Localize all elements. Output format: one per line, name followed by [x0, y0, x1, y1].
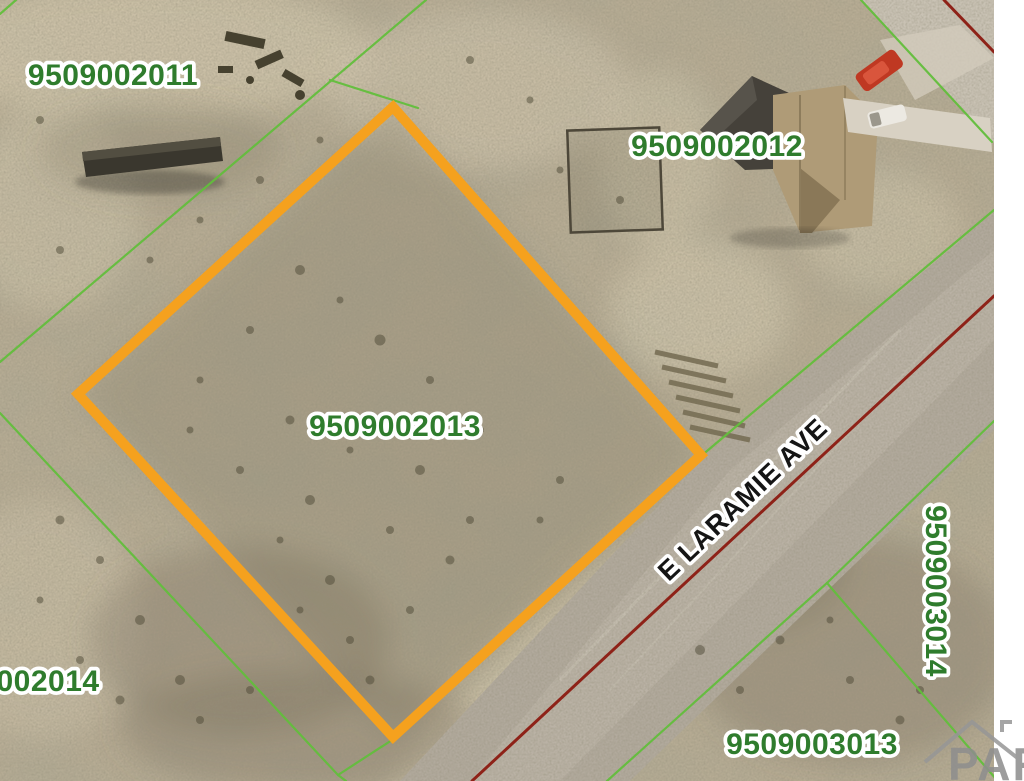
right-margin — [994, 0, 1024, 781]
parcel-label-9509003014: 9509003014 — [919, 505, 952, 677]
parcel-label-9509002014-partial: 002014 — [0, 665, 100, 698]
parcel-label-9509003013: 9509003013 — [726, 728, 898, 761]
photo-area — [0, 0, 1010, 781]
parcel-label-9509002012: 9509002012 — [631, 130, 803, 163]
parcel-label-9509002011: 9509002011 — [28, 59, 198, 92]
watermark-text: PAR — [948, 738, 1024, 781]
aerial-photo: 9509002011 9509002012 9509002013 002014 … — [0, 0, 1024, 781]
parcel-label-9509002013: 9509002013 — [309, 410, 481, 443]
parcel-map: 9509002011 9509002012 9509002013 002014 … — [0, 0, 1024, 781]
